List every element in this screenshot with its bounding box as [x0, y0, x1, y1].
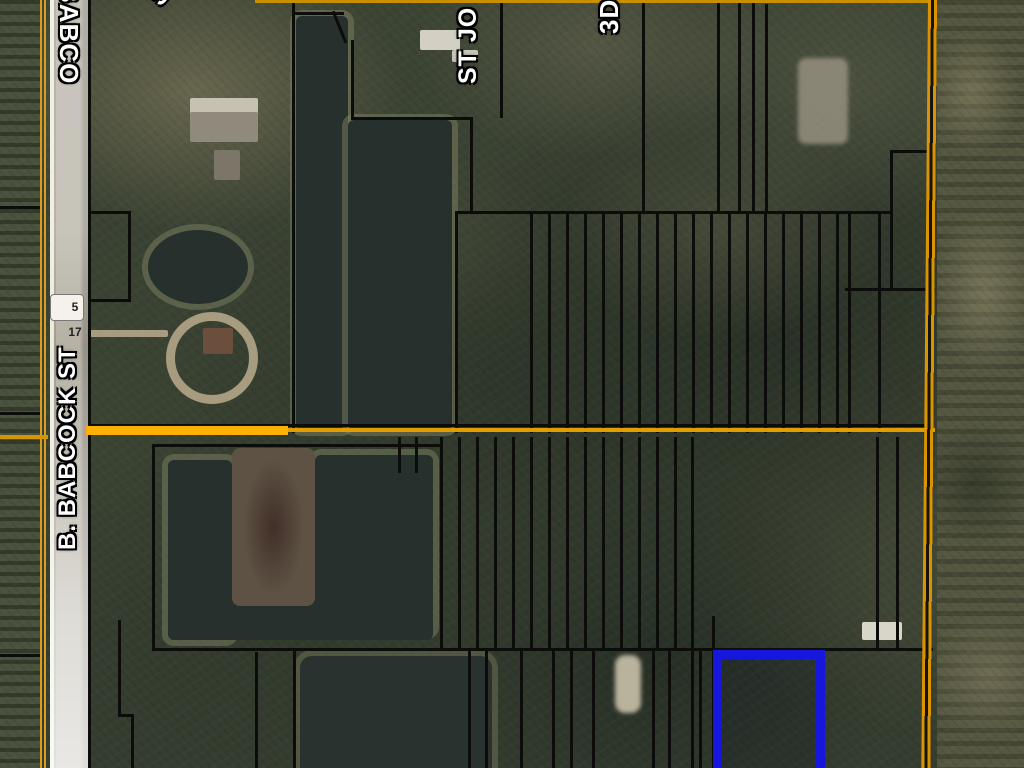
route-shield: 5 17	[50, 294, 84, 321]
strip-parcel-line	[570, 650, 573, 768]
parcel-boundary-line	[398, 437, 401, 473]
pond-island	[232, 448, 315, 606]
parcel-boundary-line	[0, 412, 40, 415]
farm-building	[190, 98, 258, 142]
parcel-boundary-line	[118, 620, 121, 717]
parcel-boundary-line	[152, 445, 155, 651]
route-shield-text: 5 17	[67, 295, 83, 345]
parcel-boundary-line	[88, 299, 131, 302]
road-label-text: B. BABCOCK ST	[54, 346, 82, 550]
strip-parcel-line	[520, 650, 523, 768]
strip-parcel-line	[548, 437, 551, 650]
parcel-boundary-line	[0, 654, 40, 657]
strip-parcel-line	[552, 650, 555, 768]
strip-parcel-line	[699, 650, 702, 768]
parcel-boundary-line	[691, 437, 694, 768]
aerial-parcel-map[interactable]: BABCO 5 17 B. BABCOCK ST ST JO S 3D	[0, 0, 1024, 768]
farm-shed	[214, 150, 240, 180]
parcel-boundary-line	[0, 206, 40, 209]
strip-parcel-line	[848, 211, 851, 433]
pond-upper-arm	[296, 16, 348, 430]
strip-parcel-line	[652, 650, 655, 768]
homestead-top-right	[798, 58, 848, 144]
parcel-boundary-line	[717, 0, 720, 212]
strip-parcel-line	[638, 211, 641, 433]
parcel-boundary-line	[455, 211, 890, 214]
strip-parcel-line	[746, 211, 749, 433]
strip-parcel-line	[620, 437, 623, 650]
strip-parcel-line	[494, 437, 497, 650]
strip-parcel-line	[818, 211, 821, 433]
parcel-boundary-line	[128, 211, 131, 302]
strip-parcel-line	[548, 211, 551, 433]
parcel-boundary-line	[765, 4, 768, 212]
strip-parcel-line	[800, 211, 803, 433]
parcel-boundary-line	[876, 437, 879, 649]
parcel-boundary-line	[351, 40, 354, 120]
strip-parcel-line	[692, 211, 695, 433]
strip-parcel-line	[584, 211, 587, 433]
parcel-boundary-line	[752, 0, 755, 212]
strip-parcel-line	[638, 437, 641, 650]
pond-upper-body	[348, 120, 452, 430]
strip-parcel-line	[620, 211, 623, 433]
strip-parcel-line	[592, 650, 595, 768]
road-label-text: BABCO	[53, 0, 84, 84]
parcel-boundary-line	[642, 0, 645, 212]
parcel-boundary-line	[292, 0, 295, 433]
strip-parcel-line	[836, 211, 839, 433]
section-line-bright-segment	[86, 426, 288, 435]
parcel-boundary-line	[293, 650, 296, 768]
parcel-boundary-line	[415, 437, 418, 473]
parcel-boundary-line	[440, 437, 443, 651]
parcel-boundary-line	[890, 150, 893, 291]
parcel-boundary-line	[455, 211, 458, 433]
parcel-boundary-line	[88, 211, 131, 214]
strip-parcel-line	[512, 437, 515, 650]
strip-parcel-line	[674, 437, 677, 650]
strip-parcel-line	[584, 437, 587, 650]
circular-driveway	[166, 312, 258, 404]
imagery-texture	[0, 0, 1024, 768]
pond-bottom-middle	[300, 656, 492, 768]
parcel-boundary-line	[738, 0, 741, 212]
strip-parcel-line	[656, 437, 659, 650]
street-label-text: ST JO	[454, 7, 483, 84]
strip-parcel-line	[530, 437, 533, 650]
road-edge-line	[40, 0, 42, 768]
sand-trail	[615, 655, 641, 713]
strip-parcel-line	[602, 211, 605, 433]
strip-parcel-line	[878, 211, 881, 433]
parcel-boundary-line	[500, 0, 503, 118]
house-roof	[203, 328, 233, 354]
parcel-boundary-line	[118, 714, 134, 717]
strip-parcel-line	[764, 211, 767, 433]
strip-parcel-line	[656, 211, 659, 433]
strip-parcel-line	[458, 437, 461, 650]
fragment-text: 3D	[594, 0, 625, 34]
road-edge-line-2	[44, 0, 46, 768]
strip-parcel-line	[566, 211, 569, 433]
strip-parcel-line	[485, 650, 488, 768]
driveway-path	[88, 330, 168, 337]
section-line-west	[0, 435, 48, 439]
strip-parcel-line	[476, 437, 479, 650]
parcel-boundary-line	[255, 652, 258, 768]
parcel-boundary-line	[152, 444, 443, 447]
strip-parcel-line	[468, 650, 471, 768]
parcel-boundary-line	[351, 117, 473, 120]
parcel-boundary-line	[896, 437, 899, 649]
strip-parcel-line	[566, 437, 569, 650]
strip-parcel-line	[530, 211, 533, 433]
strip-parcel-line	[782, 211, 785, 433]
parcel-boundary-line	[470, 117, 473, 214]
selected-parcel-highlight[interactable]	[713, 650, 825, 768]
strip-parcel-line	[728, 211, 731, 433]
parcel-boundary-line	[131, 714, 134, 768]
parcel-boundary-line	[88, 0, 91, 768]
pond-lower-bottom	[168, 600, 433, 640]
pond-small-west	[148, 230, 248, 304]
strip-parcel-line	[674, 211, 677, 433]
parcel-boundary-line	[845, 288, 935, 291]
strip-parcel-line	[668, 650, 671, 768]
strip-parcel-line	[602, 437, 605, 650]
strip-parcel-line	[710, 211, 713, 433]
